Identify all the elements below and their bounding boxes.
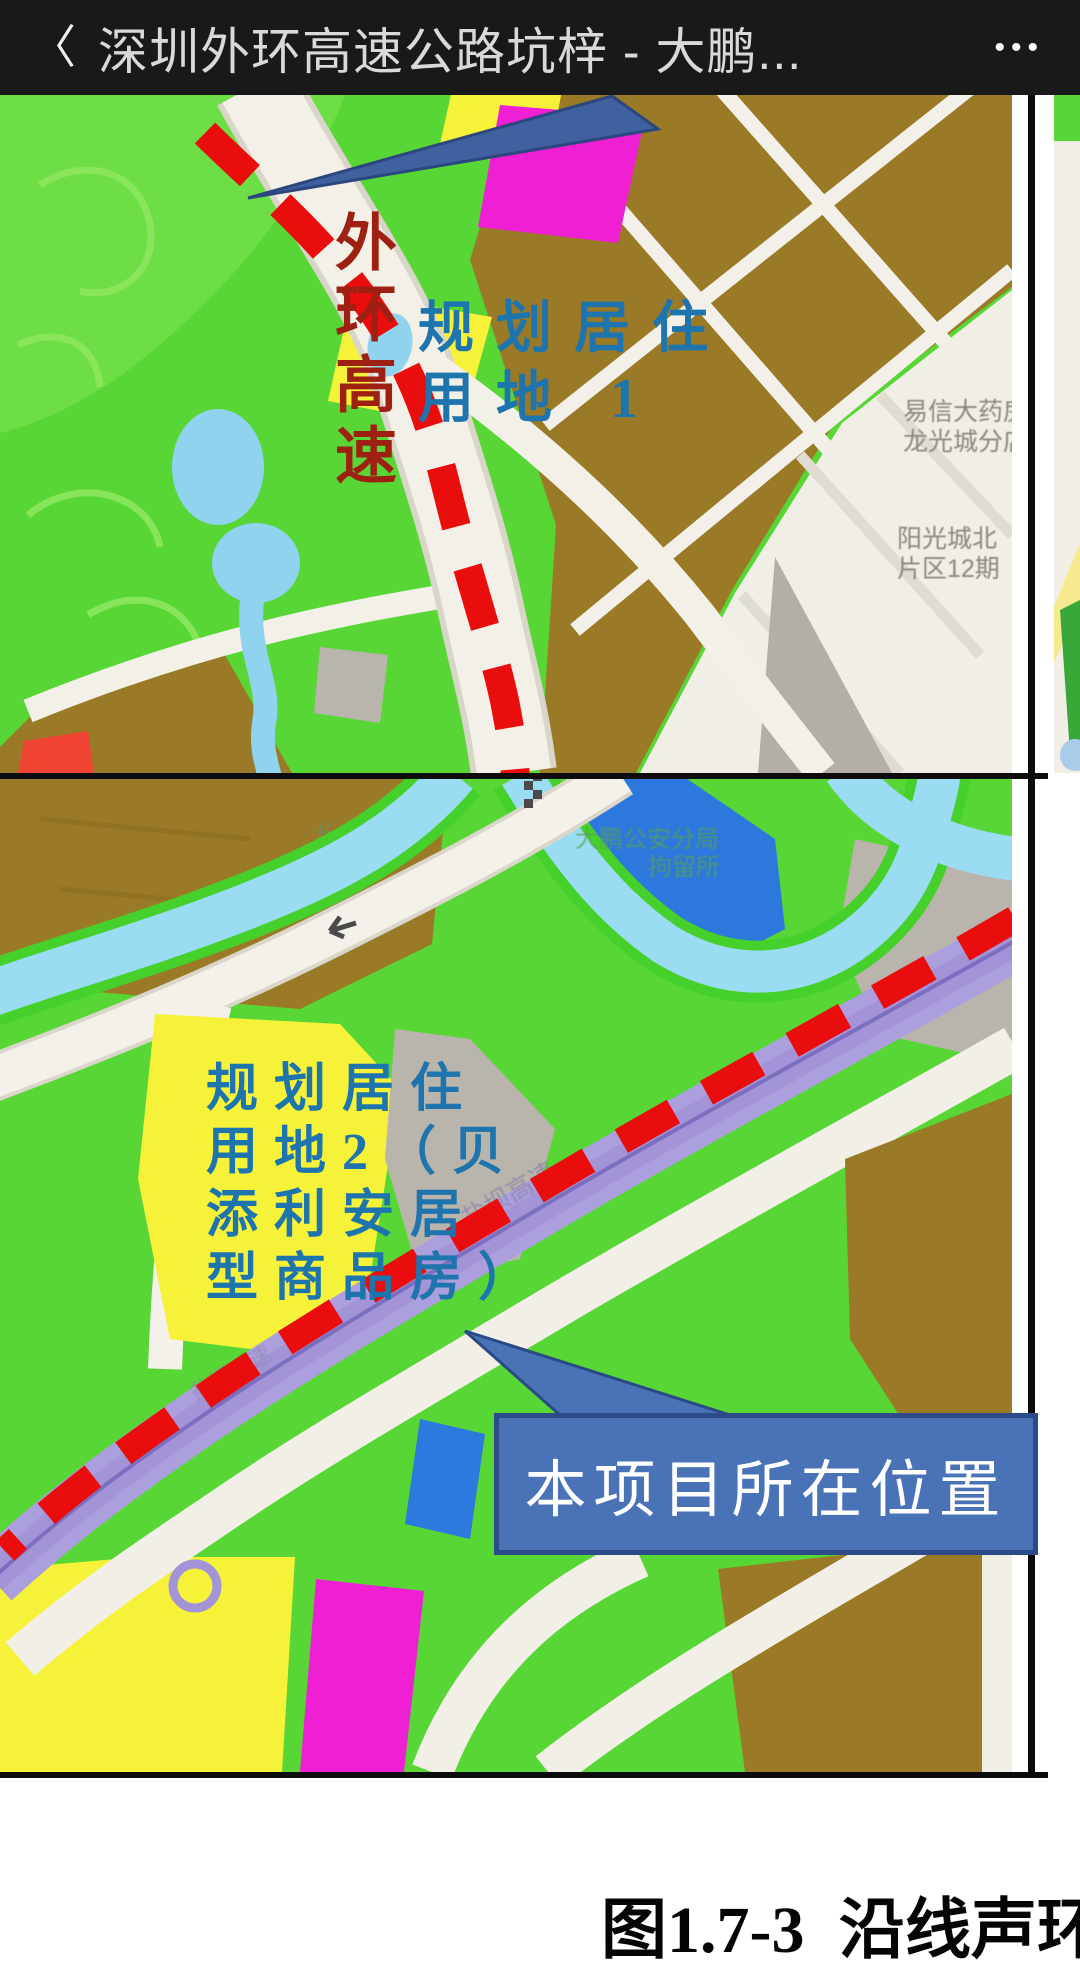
strip-cream [982,1539,1012,1772]
planning-area2-line4: 型商品房） [206,1247,546,1310]
page-title: 深圳外环高速公路坑梓 - 大鹏... [98,12,994,84]
figure-bottom-border [0,1772,1048,1778]
planning-area1-label: 规划居住 用地 1 [418,294,730,434]
block-label-1: 阳光城北 [897,525,997,553]
sliver-svg [1048,95,1080,773]
planning-area1-line2: 用地 1 [418,364,730,434]
parcel-gray-small [314,647,388,723]
pharmacy-label-1: 易信大药房 [903,398,1012,426]
expressway-vertical-label: 外环高速 [326,210,392,494]
adjacent-map-sliver [1048,95,1080,773]
planning-area2-line2: 用地2（贝 [206,1121,546,1184]
project-location-callout: 本项目所在位置 [494,1413,1038,1555]
header-bar: 〈 深圳外环高速公路坑梓 - 大鹏... ••• [0,0,1080,95]
pharmacy-label-2: 龙光城分店 [903,428,1012,456]
more-menu-button[interactable]: ••• [994,31,1044,65]
strip-magenta [300,1579,424,1772]
figure-row-divider [0,773,1048,779]
figure-caption: 图1.7-3 沿线声环 [601,1876,1080,1972]
police-label-2: 拘留所 [648,854,720,881]
project-location-label: 本项目所在位置 [524,1439,1007,1529]
planning-area2-line3: 添利安居 [206,1184,546,1247]
sliver-green-top [1054,95,1080,141]
wechat-article-screen: 〈 深圳外环高速公路坑梓 - 大鹏... ••• [0,0,1080,1988]
top-map-svg: 易信大药房 龙光城分店 阳光城北 片区12期 [0,95,1012,773]
block-label-2: 片区12期 [897,555,1000,583]
top-map-figure[interactable]: 易信大药房 龙光城分店 阳光城北 片区12期 [0,95,1012,773]
back-button[interactable]: 〈 [30,0,76,95]
police-label-1: 大鹏公安分局 [575,826,719,853]
planning-area2-line1: 规划居住 [206,1058,546,1121]
planning-area2-label: 规划居住 用地2（贝 添利安居 型商品房） [206,1058,546,1310]
planning-area1-line1: 规划居住 [418,294,730,364]
